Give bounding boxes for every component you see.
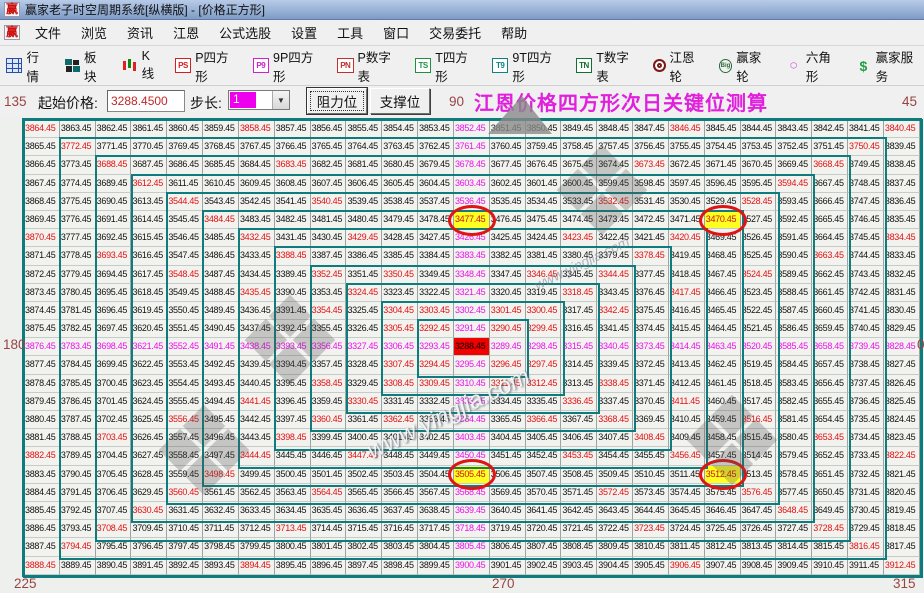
grid-cell: 3357.45 [311, 356, 347, 374]
grid-cell: 3514.45 [741, 447, 777, 465]
grid-cell: 3400.45 [346, 429, 382, 447]
grid-cell: 3389.45 [275, 266, 311, 284]
grid-cell: 3850.45 [526, 120, 562, 138]
grid-cell: 3519.45 [741, 356, 777, 374]
grid-cell: 3757.45 [597, 138, 633, 156]
angle-label-90: 90 [449, 94, 464, 109]
grid-cell: 3294.45 [418, 356, 454, 374]
grid-cell: 3512.45 [705, 466, 741, 484]
grid-cell: 3669.45 [776, 156, 812, 174]
grid-cell: 3496.45 [203, 429, 239, 447]
grid-cell: 3795.45 [96, 538, 132, 556]
grid-cell: 3835.45 [884, 211, 920, 229]
grid-cell: 3416.45 [669, 302, 705, 320]
grid-cell: 3410.45 [669, 411, 705, 429]
grid-cell: 3336.45 [561, 393, 597, 411]
grid-cell: 3808.45 [561, 538, 597, 556]
grid-cell: 3487.45 [203, 266, 239, 284]
grid-cell: 3509.45 [597, 466, 633, 484]
angle-label-225: 225 [14, 576, 37, 591]
grid-cell: 3339.45 [597, 356, 633, 374]
grid-cell: 3328.45 [346, 356, 382, 374]
grid-cell: 3516.45 [741, 411, 777, 429]
grid-row: 3867.453774.453689.453612.453611.453610.… [24, 175, 920, 193]
grid-row: 3888.453889.453890.453891.453892.453893.… [24, 557, 920, 575]
step-selected-value: 1 [230, 92, 256, 108]
grid-cell: 3327.45 [346, 338, 382, 356]
toolbar-button-label: 9P四方形 [273, 47, 324, 85]
grid-cell: 3361.45 [346, 411, 382, 429]
grid-cell: 3755.45 [669, 138, 705, 156]
grid-cell: 3462.45 [705, 356, 741, 374]
grid-cell: 3825.45 [884, 393, 920, 411]
grid-cell: 3623.45 [131, 375, 167, 393]
grid-cell: 3412.45 [669, 375, 705, 393]
grid-cell: 3385.45 [382, 247, 418, 265]
grid-cell: 3367.45 [561, 411, 597, 429]
grid-row: 3868.453775.453690.453613.453544.453543.… [24, 193, 920, 211]
grid-cell: 3848.45 [597, 120, 633, 138]
grid-cell: 3717.45 [418, 520, 454, 538]
grid-cell: 3433.45 [239, 247, 275, 265]
grid-cell: 3457.45 [705, 447, 741, 465]
toolbar-button[interactable]: $赢家服务 [855, 47, 924, 85]
grid-cell: 3656.45 [812, 375, 848, 393]
grid-cell: 3413.45 [669, 356, 705, 374]
grid-cell: 3720.45 [526, 520, 562, 538]
grid-row: 3866.453773.453688.453687.453686.453685.… [24, 156, 920, 174]
grid-cell: 3560.45 [167, 484, 203, 502]
grid-cell: 3561.45 [203, 484, 239, 502]
grid-cell: 3472.45 [633, 211, 669, 229]
grid-cell: 3820.45 [884, 484, 920, 502]
grid-cell: 3365.45 [490, 411, 526, 429]
grid-cell: 3819.45 [884, 502, 920, 520]
toolbar-button[interactable]: PNP数字表 [337, 47, 402, 85]
grid-cell: 3408.45 [633, 429, 669, 447]
grid-cell: 3395.45 [275, 375, 311, 393]
grid-cell: 3645.45 [669, 502, 705, 520]
grid-cell: 3403.45 [454, 429, 490, 447]
grid-cell: 3788.45 [60, 429, 96, 447]
start-price-input[interactable] [107, 90, 185, 112]
grid-cell: 3859.45 [203, 120, 239, 138]
grid-cell: 3565.45 [346, 484, 382, 502]
grid-cell: 3489.45 [203, 302, 239, 320]
grid-cell: 3398.45 [275, 429, 311, 447]
grid-cell: 3701.45 [96, 393, 132, 411]
grid-cell: 3605.45 [382, 175, 418, 193]
grid-cell: 3750.45 [848, 138, 884, 156]
grid-cell: 3319.45 [526, 284, 562, 302]
grid-cell: 3481.45 [311, 211, 347, 229]
grid-cell: 3569.45 [490, 484, 526, 502]
grid-cell: 3803.45 [382, 538, 418, 556]
grid-cell: 3475.45 [526, 211, 562, 229]
grid-cell: 3349.45 [418, 266, 454, 284]
grid-cell: 3672.45 [669, 156, 705, 174]
grid-cell: 3493.45 [203, 375, 239, 393]
grid-cell: 3548.45 [167, 266, 203, 284]
grid-cell: 3829.45 [884, 320, 920, 338]
grid-cell: 3546.45 [167, 229, 203, 247]
grid-cell: 3399.45 [311, 429, 347, 447]
grid-cell: 3316.45 [561, 320, 597, 338]
toolbar-button[interactable]: 板块 [64, 47, 109, 85]
grid-cell: 3337.45 [597, 393, 633, 411]
grid-cell: 3609.45 [239, 175, 275, 193]
chevron-down-icon[interactable]: ▼ [272, 91, 289, 109]
grid-cell: 3891.45 [131, 557, 167, 575]
grid-cell: 3577.45 [776, 484, 812, 502]
hexagon-icon: ⬡ [785, 58, 801, 73]
grid-cell: 3559.45 [167, 466, 203, 484]
grid-cell: 3417.45 [669, 284, 705, 302]
grid-row: 3875.453782.453697.453620.453551.453490.… [24, 320, 920, 338]
grid-cell: 3445.45 [275, 447, 311, 465]
grid-cell: 3449.45 [418, 447, 454, 465]
grid-cell: 3736.45 [848, 393, 884, 411]
grid-cell: 3440.45 [239, 375, 275, 393]
grid-cell: 3595.45 [741, 175, 777, 193]
grid-cell: 3513.45 [741, 466, 777, 484]
grid-cell: 3745.45 [848, 229, 884, 247]
grid-cell: 3432.45 [239, 229, 275, 247]
grid-row: 3871.453778.453693.453616.453547.453486.… [24, 247, 920, 265]
toolbar-button[interactable]: TST四方形 [415, 47, 479, 85]
resistance-button[interactable]: 阻力位 [307, 88, 367, 114]
grid-cell: 3499.45 [239, 466, 275, 484]
grid-cell: 3723.45 [633, 520, 669, 538]
grid-cell: 3752.45 [776, 138, 812, 156]
grid-cell: 3552.45 [167, 338, 203, 356]
grid-cell: 3520.45 [741, 338, 777, 356]
grid-cell: 3522.45 [741, 302, 777, 320]
grid-cell: 3581.45 [776, 411, 812, 429]
grid-cell: 3631.45 [167, 502, 203, 520]
grid-cell: 3473.45 [597, 211, 633, 229]
grid-cell: 3347.45 [490, 266, 526, 284]
grid-cell: 3306.45 [382, 338, 418, 356]
grid-cell: 3478.45 [418, 211, 454, 229]
grid-cell: 3784.45 [60, 356, 96, 374]
grid-cell: 3553.45 [167, 356, 203, 374]
grid-cell: 3668.45 [812, 156, 848, 174]
grid-cell: 3877.45 [24, 356, 60, 374]
grid-cell: 3452.45 [526, 447, 562, 465]
grid-cell: 3865.45 [24, 138, 60, 156]
grid-cell: 3611.45 [167, 175, 203, 193]
grid-cell: 3592.45 [776, 211, 812, 229]
grid-cell: 3853.45 [418, 120, 454, 138]
grid-cell: 3437.45 [239, 320, 275, 338]
grid-cell: 3310.45 [454, 375, 490, 393]
grid-cell: 3911.45 [848, 557, 884, 575]
menu-item[interactable]: 帮助 [491, 21, 537, 44]
toolbar-button-label: T数字表 [596, 47, 640, 85]
grid-cell: 3732.45 [848, 466, 884, 484]
title-bar: 赢 赢家老子时空周期系统[纵横版] - [价格正方形] [0, 0, 924, 20]
grid-row: 3872.453779.453694.453617.453548.453487.… [24, 266, 920, 284]
grid-cell: 3652.45 [812, 447, 848, 465]
grid-cell: 3485.45 [203, 229, 239, 247]
grid-cell: 3564.45 [311, 484, 347, 502]
grid-cell: 3791.45 [60, 484, 96, 502]
grid-cell: 3596.45 [705, 175, 741, 193]
toolbar-button[interactable]: 行情 [6, 47, 51, 85]
grid-cell: 3406.45 [561, 429, 597, 447]
menu-item[interactable]: 资讯 [117, 21, 163, 44]
grid-cell: 3787.45 [60, 411, 96, 429]
grid-cell: 3460.45 [705, 393, 741, 411]
grid-cell: 3352.45 [311, 266, 347, 284]
grid-cell: 3742.45 [848, 284, 884, 302]
grid-cell: 3834.45 [884, 229, 920, 247]
grid-cell: 3830.45 [884, 302, 920, 320]
grid-cell: 3431.45 [275, 229, 311, 247]
grid-row: 3878.453785.453700.453623.453554.453493.… [24, 375, 920, 393]
grid-cell: 3733.45 [848, 447, 884, 465]
grid-cell: 3888.45 [24, 557, 60, 575]
grid-cell: 3706.45 [96, 484, 132, 502]
grid-cell: 3351.45 [346, 266, 382, 284]
grid-cell: 3813.45 [741, 538, 777, 556]
grid-cell: 3518.45 [741, 375, 777, 393]
grid-cell: 3684.45 [239, 156, 275, 174]
grid-cell: 3479.45 [382, 211, 418, 229]
grid-cell: 3822.45 [884, 447, 920, 465]
menu-item[interactable]: 江恩 [163, 21, 209, 44]
grid-cell: 3435.45 [239, 284, 275, 302]
grid-cell: 3908.45 [741, 557, 777, 575]
grid-cell: 3827.45 [884, 356, 920, 374]
grid-cell: 3657.45 [812, 356, 848, 374]
grid-cell: 3598.45 [633, 175, 669, 193]
gann-price-square-grid: 3864.453863.453862.453861.453860.453859.… [22, 118, 922, 577]
grid-cell: 3574.45 [669, 484, 705, 502]
grid-cell: 3600.45 [561, 175, 597, 193]
grid-cell: 3508.45 [561, 466, 597, 484]
grid-cell: 3713.45 [275, 520, 311, 538]
grid-cell: 3344.45 [597, 266, 633, 284]
grid-cell: 3798.45 [203, 538, 239, 556]
grid-cell: 3307.45 [382, 356, 418, 374]
grid-cell: 3708.45 [96, 520, 132, 538]
grid-cell: 3557.45 [167, 429, 203, 447]
grid-row: 3876.453783.453698.453621.453552.453491.… [24, 338, 920, 356]
grid-cell: 3454.45 [597, 447, 633, 465]
grid-cell: 3613.45 [131, 193, 167, 211]
grid-cell: 3572.45 [597, 484, 633, 502]
grid-cell: 3781.45 [60, 302, 96, 320]
grid-row: 3887.453794.453795.453796.453797.453798.… [24, 538, 920, 556]
menu-item[interactable]: 窗口 [373, 21, 419, 44]
grid-cell: 3856.45 [311, 120, 347, 138]
menu-item[interactable]: 浏览 [71, 21, 117, 44]
grid-cell: 3857.45 [275, 120, 311, 138]
toolbar-button-label: T四方形 [435, 47, 479, 85]
grid-cell: 3683.45 [275, 156, 311, 174]
grid-cell: 3831.45 [884, 284, 920, 302]
grid-cell: 3442.45 [239, 411, 275, 429]
grid-cell: 3324.45 [346, 284, 382, 302]
grid-cell: 3712.45 [239, 520, 275, 538]
step-combobox[interactable]: 1 ▼ [228, 90, 290, 110]
grid-cell: 3468.45 [705, 247, 741, 265]
grid-cell: 3644.45 [633, 502, 669, 520]
grid-cell: 3886.45 [24, 520, 60, 538]
grid-cell: 3397.45 [275, 411, 311, 429]
grid-cell: 3298.45 [526, 338, 562, 356]
grid-cell: 3334.45 [490, 393, 526, 411]
grid-cell: 3896.45 [311, 557, 347, 575]
grid-cell: 3651.45 [812, 466, 848, 484]
grid-cell: 3372.45 [633, 356, 669, 374]
grid-cell: 3480.45 [346, 211, 382, 229]
grid-cell: 3606.45 [346, 175, 382, 193]
grid-cell: 3737.45 [848, 375, 884, 393]
toolbar-button[interactable]: TNT数字表 [576, 47, 640, 85]
grid-cell: 3881.45 [24, 429, 60, 447]
grid-cell: 3315.45 [561, 338, 597, 356]
grid-cell: 3714.45 [311, 520, 347, 538]
grid-cell: 3608.45 [275, 175, 311, 193]
gann-wheel-icon [653, 59, 666, 72]
grid-cell: 3402.45 [418, 429, 454, 447]
grid-cell: 3599.45 [597, 175, 633, 193]
grid-cell: 3894.45 [239, 557, 275, 575]
grid-cell: 3636.45 [346, 502, 382, 520]
grid-cell: 3789.45 [60, 447, 96, 465]
grid-cell: 3671.45 [705, 156, 741, 174]
toolbar-button[interactable]: 江恩轮 [653, 47, 706, 85]
grid-cell: 3866.45 [24, 156, 60, 174]
grid-cell: 3515.45 [741, 429, 777, 447]
grid-cell: 3629.45 [131, 484, 167, 502]
grid-cell: 3887.45 [24, 538, 60, 556]
toolbar-button[interactable]: Big赢家轮 [719, 47, 773, 85]
grid-cell: 3826.45 [884, 375, 920, 393]
angle-label-135: 135 [4, 94, 27, 109]
grid-cell: 3355.45 [311, 320, 347, 338]
grid-cell: 3290.45 [490, 320, 526, 338]
grid-cell: 3313.45 [561, 375, 597, 393]
grid-cell: 3705.45 [96, 466, 132, 484]
grid-cell: 3841.45 [848, 120, 884, 138]
toolbar-button[interactable]: K线 [121, 49, 162, 82]
menu-item[interactable]: 设置 [281, 21, 327, 44]
grid-cell: 3840.45 [884, 120, 920, 138]
grid-cell: 3807.45 [526, 538, 562, 556]
grid-cell: 3768.45 [203, 138, 239, 156]
menu-item[interactable]: 交易委托 [419, 21, 491, 44]
grid-cell: 3583.45 [776, 375, 812, 393]
grid-cell: 3368.45 [597, 411, 633, 429]
grid-cell: 3901.45 [490, 557, 526, 575]
grid-row: 3884.453791.453706.453629.453560.453561.… [24, 484, 920, 502]
grid-cell: 3670.45 [741, 156, 777, 174]
grid-cell: 3381.45 [526, 247, 562, 265]
grid-cell: 3847.45 [633, 120, 669, 138]
grid-row: 3881.453788.453703.453626.453557.453496.… [24, 429, 920, 447]
menu-item[interactable]: 文件 [25, 21, 71, 44]
grid-cell: 3342.45 [597, 302, 633, 320]
grid-cell: 3506.45 [490, 466, 526, 484]
grid-cell: 3842.45 [812, 120, 848, 138]
grid-cell: 3778.45 [60, 247, 96, 265]
grid-row: 3874.453781.453696.453619.453550.453489.… [24, 302, 920, 320]
toolbar-button-label: 9T四方形 [512, 47, 562, 85]
menu-item[interactable]: 公式选股 [209, 21, 281, 44]
grid-cell: 3858.45 [239, 120, 275, 138]
grid-cell: 3317.45 [561, 302, 597, 320]
grid-cell: 3458.45 [705, 429, 741, 447]
grid-cell: 3722.45 [597, 520, 633, 538]
grid-cell: 3779.45 [60, 266, 96, 284]
grid-cell: 3376.45 [633, 284, 669, 302]
grid-cell: 3463.45 [705, 338, 741, 356]
grid-cell: 3444.45 [239, 447, 275, 465]
grid-cell: 3861.45 [131, 120, 167, 138]
grid-cell: 3910.45 [812, 557, 848, 575]
grid-cell: 3849.45 [561, 120, 597, 138]
grid-cell: 3860.45 [167, 120, 203, 138]
grid-cell: 3366.45 [526, 411, 562, 429]
grid-cell: 3872.45 [24, 266, 60, 284]
grid-cell: 3394.45 [275, 356, 311, 374]
grid-cell: 3812.45 [705, 538, 741, 556]
grid-cell: 3539.45 [346, 193, 382, 211]
grid-cell: 3615.45 [131, 229, 167, 247]
grid-cell: 3867.45 [24, 175, 60, 193]
menu-item[interactable]: 工具 [327, 21, 373, 44]
grid-cell: 3905.45 [633, 557, 669, 575]
grid-cell: 3421.45 [633, 229, 669, 247]
support-button[interactable]: 支撑位 [370, 88, 430, 114]
grid-cell: 3823.45 [884, 429, 920, 447]
grid-cell: 3816.45 [848, 538, 884, 556]
grid-cell: 3734.45 [848, 429, 884, 447]
grid-cell: 3689.45 [96, 175, 132, 193]
grid-cell: 3333.45 [454, 393, 490, 411]
grid-cell: 3646.45 [705, 502, 741, 520]
toolbar-button[interactable]: T99T四方形 [492, 47, 563, 85]
grid-cell: 3318.45 [561, 284, 597, 302]
grid-cell: 3693.45 [96, 247, 132, 265]
grid-cell: 3301.45 [490, 302, 526, 320]
grid-row: 3886.453793.453708.453709.453710.453711.… [24, 520, 920, 538]
controls-row: 135 起始价格: 步长: 1 ▼ 阻力位 支撑位 90 江恩价格四方形次日关键… [0, 86, 924, 117]
grid-cell: 3401.45 [382, 429, 418, 447]
grid-cell: 3893.45 [203, 557, 239, 575]
grid-cell: 3392.45 [275, 320, 311, 338]
grid-cell: 3404.45 [490, 429, 526, 447]
toolbar-button[interactable]: P99P四方形 [253, 47, 325, 85]
grid-row: 3877.453784.453699.453622.453553.453492.… [24, 356, 920, 374]
toolbar-button[interactable]: ⬡六角形 [785, 47, 842, 85]
toolbar-button[interactable]: PSP四方形 [175, 47, 240, 85]
grid-cell: 3716.45 [382, 520, 418, 538]
grid-cell: 3350.45 [382, 266, 418, 284]
grid-cell: 3729.45 [848, 520, 884, 538]
grid-cell: 3332.45 [418, 393, 454, 411]
grid-cell: 3446.45 [311, 447, 347, 465]
grid-cell: 3502.45 [346, 466, 382, 484]
grid-cell: 3511.45 [669, 466, 705, 484]
grid-cell: 3871.45 [24, 247, 60, 265]
grid-cell: 3425.45 [490, 229, 526, 247]
grid-cell: 3534.45 [526, 193, 562, 211]
